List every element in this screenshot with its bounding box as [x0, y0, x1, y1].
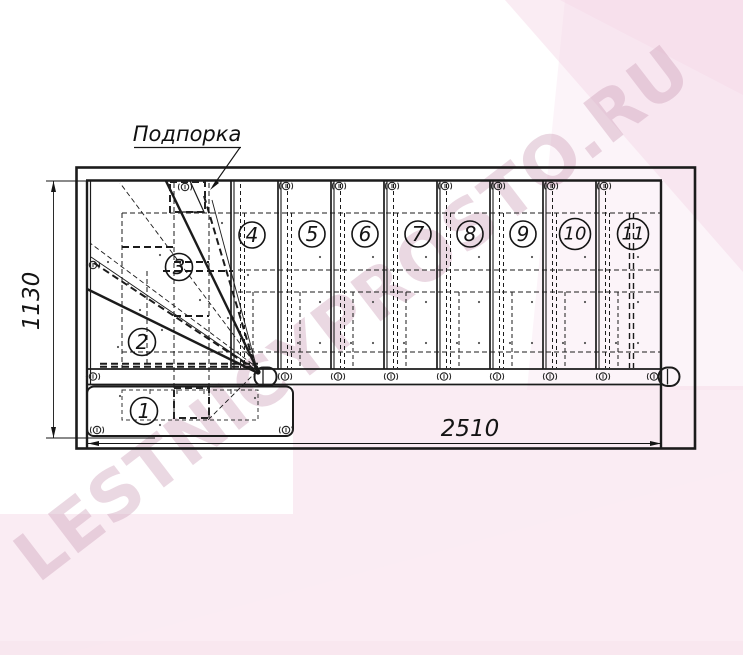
step-number: 3 [173, 255, 186, 279]
fastener-dot [478, 256, 480, 258]
fastener-dot [319, 301, 321, 303]
fastener-dot [372, 256, 374, 258]
fastener-dot [117, 346, 119, 348]
step-callout-2: 2 [129, 329, 156, 356]
screw-icon [279, 426, 292, 433]
fastener-dot [107, 261, 109, 263]
fastener-dot [531, 301, 533, 303]
fastener-dot [247, 274, 249, 276]
screw-icon [178, 183, 191, 190]
fastener-dot [509, 342, 511, 344]
fastener-dot [372, 342, 374, 344]
step-number: 2 [136, 330, 149, 354]
step-number: 10 [564, 224, 587, 245]
fastener-dot [199, 299, 201, 301]
arrowhead [88, 441, 99, 446]
fastener-dot [531, 256, 533, 258]
fastener-dot [403, 342, 405, 344]
step-number: 4 [246, 223, 259, 247]
fastener-dot [119, 395, 121, 397]
screw-icon [490, 373, 503, 380]
staircase-plan-svg: LESTNICYPROSTO.RU [0, 0, 743, 655]
fastener-dot [127, 283, 129, 285]
support-label: Подпорка [133, 122, 242, 146]
fastener-dot [297, 342, 299, 344]
fastener-dot [637, 301, 639, 303]
fastener-dot [584, 256, 586, 258]
arrowhead [51, 181, 56, 192]
fastener-dot [350, 342, 352, 344]
screw-icon [384, 373, 397, 380]
fastener-dot [478, 342, 480, 344]
fastener-dot [478, 301, 480, 303]
fastener-dot [221, 222, 223, 224]
fastener-dot [161, 329, 163, 331]
height-dimension-text: 1130 [19, 272, 45, 331]
fastener-dot [584, 342, 586, 344]
fastener-dot [425, 301, 427, 303]
fastener-dot [139, 309, 141, 311]
fastener-dot [372, 301, 374, 303]
fastener-dot [227, 317, 229, 319]
step-number: 11 [622, 224, 645, 245]
fastener-dot [159, 424, 161, 426]
watermark: LESTNICYPROSTO.RU [0, 0, 743, 655]
support-footprint [170, 182, 205, 212]
fastener-dot [319, 342, 321, 344]
fastener-dot [319, 256, 321, 258]
fastener-dot [456, 342, 458, 344]
fastener-dot [425, 342, 427, 344]
fastener-dot [615, 342, 617, 344]
fastener-dot [562, 342, 564, 344]
step-number: 6 [359, 222, 372, 246]
fastener-dot [637, 342, 639, 344]
width-dimension-text: 2510 [441, 416, 500, 442]
step-callout-4: 4 [239, 222, 265, 248]
screw-icon [437, 373, 450, 380]
fastener-dot [637, 256, 639, 258]
drawing-canvas: LESTNICYPROSTO.RU [0, 0, 743, 655]
step-callout-6: 6 [352, 221, 378, 247]
fastener-dot [159, 254, 161, 256]
screw-icon [90, 426, 103, 433]
fastener-dot [249, 344, 251, 346]
step-number: 9 [517, 222, 530, 246]
fastener-dot [425, 256, 427, 258]
step-number: 5 [306, 222, 319, 246]
watermark-shape [0, 641, 743, 655]
fastener-dot [531, 342, 533, 344]
arrowhead [51, 427, 56, 438]
step-callout-3: 3 [166, 254, 193, 281]
step-number: 1 [138, 399, 151, 423]
fastener-dot [584, 301, 586, 303]
fastener-dot [254, 397, 256, 399]
step-number: 8 [464, 222, 477, 246]
screw-icon [86, 373, 99, 380]
step-number: 7 [412, 222, 425, 246]
step-callout-1: 1 [131, 398, 158, 425]
step-callout-5: 5 [299, 221, 325, 247]
